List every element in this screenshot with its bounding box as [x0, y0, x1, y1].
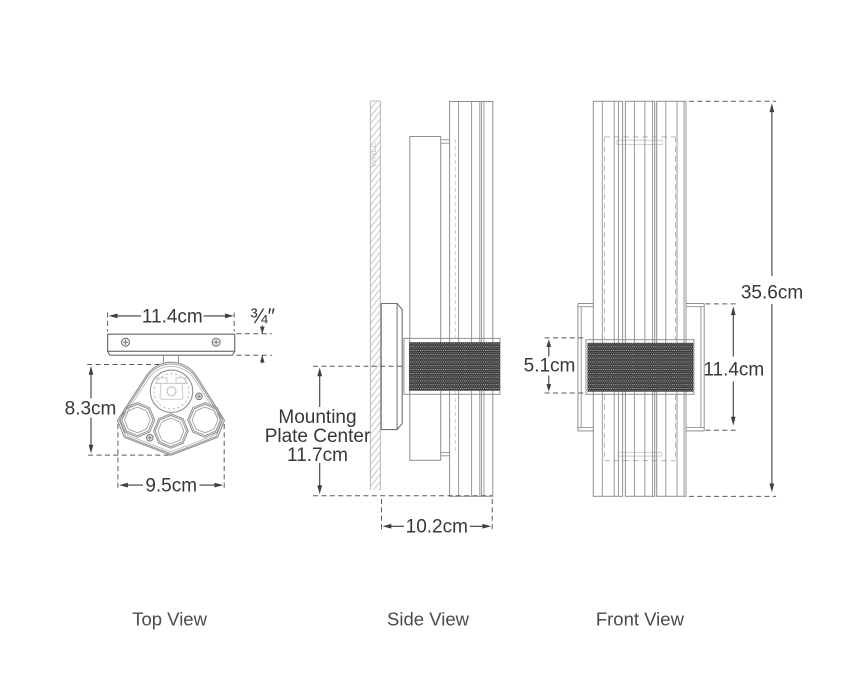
svg-text:9.5cm: 9.5cm	[145, 476, 197, 497]
svg-text:Top View: Top View	[132, 609, 207, 630]
svg-text:8.3cm: 8.3cm	[65, 399, 117, 420]
svg-text:Plate Center: Plate Center	[265, 426, 371, 447]
svg-text:11.4cm: 11.4cm	[142, 306, 203, 327]
svg-text:¾″: ¾″	[250, 305, 276, 328]
svg-text:35.6cm: 35.6cm	[741, 282, 803, 303]
svg-text:Side View: Side View	[387, 609, 470, 630]
svg-text:WALL: WALL	[368, 142, 379, 168]
svg-text:11.4cm: 11.4cm	[703, 360, 764, 381]
svg-text:Mounting: Mounting	[278, 407, 356, 428]
svg-text:11.7cm: 11.7cm	[287, 445, 348, 466]
svg-text:10.2cm: 10.2cm	[406, 517, 468, 538]
svg-text:5.1cm: 5.1cm	[524, 356, 576, 377]
svg-text:Front View: Front View	[596, 609, 685, 630]
